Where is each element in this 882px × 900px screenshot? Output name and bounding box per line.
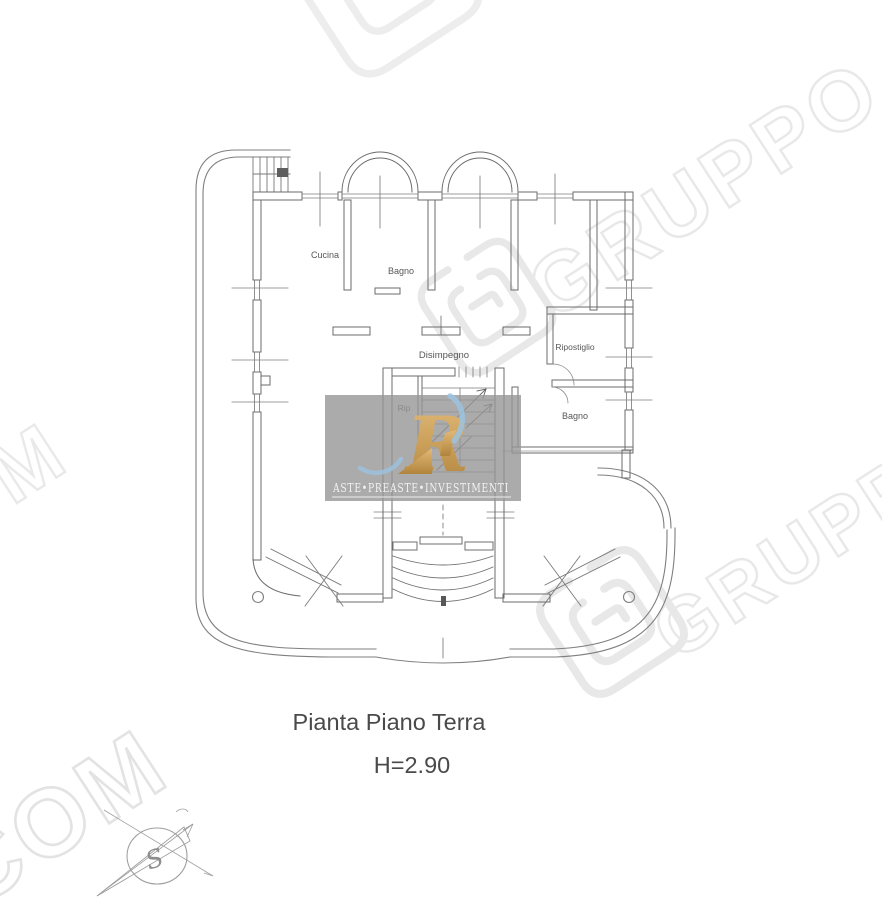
logo-caption: ASTE•PREASTE•INVESTIMENTI	[332, 481, 509, 495]
room-label-cucina: Cucina	[311, 250, 339, 260]
room-label-disimpegno: Disimpegno	[419, 350, 469, 361]
ramp-left	[266, 549, 343, 606]
watermark-gruppo-e-right: GRUPPO E	[532, 356, 882, 701]
plan-title-block: Pianta Piano Terra H=2.90	[293, 709, 487, 778]
room-label-bagno-right: Bagno	[562, 411, 588, 421]
room-label-bagno-top: Bagno	[388, 266, 414, 276]
page-title: Pianta Piano Terra	[293, 709, 487, 735]
floorplan-scan: GRUPPO E GRUPPO E .COM .COM	[0, 0, 882, 900]
exterior-stairs	[253, 157, 290, 192]
compass-letter: S	[142, 843, 167, 876]
room-label-ripostiglio: Ripostiglio	[555, 342, 594, 352]
height-label: H=2.90	[374, 752, 450, 778]
watermark-gruppo-e-top-right: GRUPPO E	[414, 0, 882, 380]
watermark-com-left: .COM	[0, 405, 83, 607]
watermark-e-glyph-top-icon	[281, 0, 488, 84]
watermark-brand-text: GRUPPO E	[637, 356, 882, 676]
agency-logo-overlay: R ASTE•PREASTE•INVESTIMENTI	[325, 395, 521, 501]
bay-window-arches	[342, 152, 518, 192]
watermark-brand-text: GRUPPO E	[512, 0, 882, 337]
